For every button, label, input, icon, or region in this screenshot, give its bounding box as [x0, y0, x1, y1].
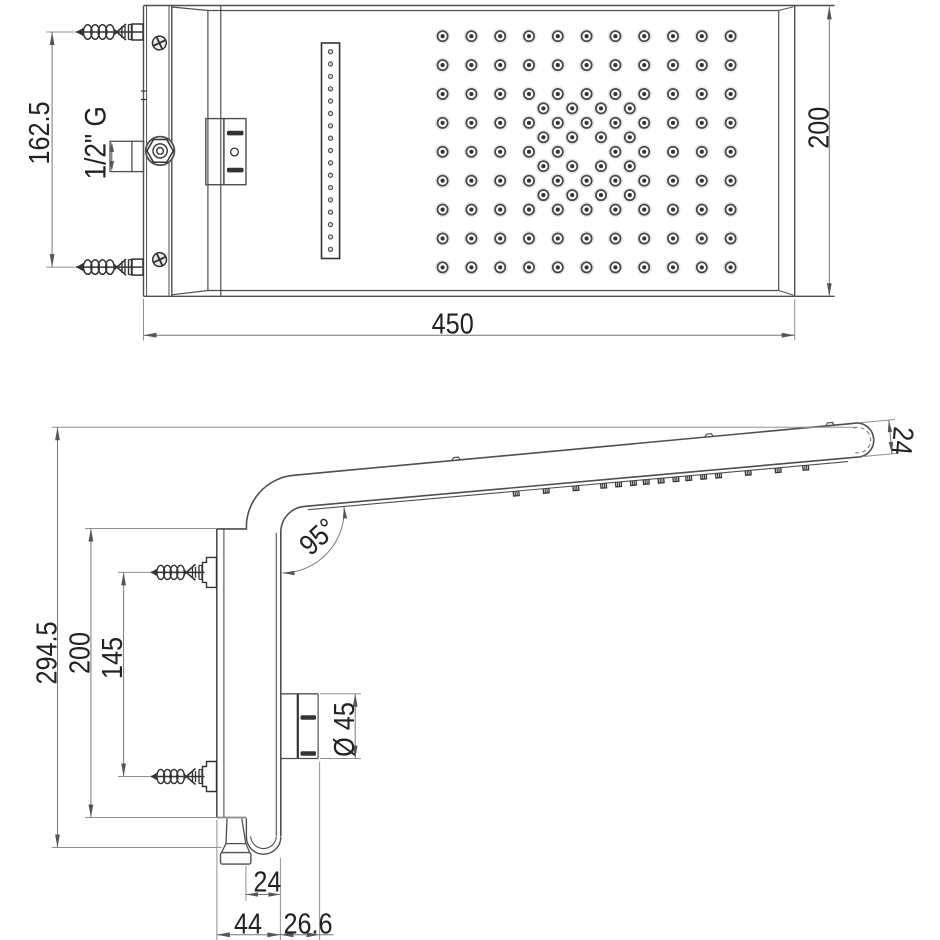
svg-text:200: 200 — [802, 107, 835, 149]
svg-text:162.5: 162.5 — [22, 101, 55, 164]
svg-text:450: 450 — [432, 307, 474, 340]
svg-text:Ø 45: Ø 45 — [327, 702, 360, 757]
svg-text:294.5: 294.5 — [30, 621, 63, 684]
svg-text:26.6: 26.6 — [283, 907, 332, 940]
svg-text:24: 24 — [253, 865, 281, 898]
svg-text:24: 24 — [885, 425, 920, 456]
svg-text:200: 200 — [63, 632, 96, 674]
svg-text:44: 44 — [234, 907, 262, 940]
svg-text:95°: 95° — [292, 511, 342, 561]
svg-text:145: 145 — [95, 637, 128, 679]
svg-text:1/2" G: 1/2" G — [79, 106, 112, 179]
